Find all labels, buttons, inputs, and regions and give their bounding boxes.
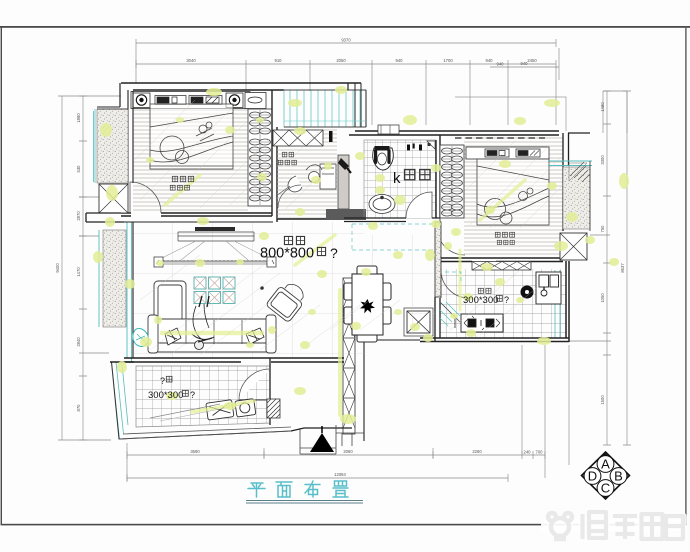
svg-text:C: C [601, 481, 610, 496]
svg-text:750: 750 [600, 225, 605, 233]
svg-text:1480: 1480 [600, 102, 605, 112]
svg-text:?: ? [190, 390, 195, 400]
svg-text:300*300: 300*300 [148, 390, 183, 401]
svg-text:240: 240 [524, 450, 532, 455]
svg-text:530: 530 [76, 165, 81, 173]
svg-text:300*300: 300*300 [463, 295, 498, 306]
svg-text:2870: 2870 [76, 211, 81, 221]
svg-text:910: 910 [275, 58, 283, 63]
svg-text:k: k [393, 170, 401, 187]
svg-text:12084: 12084 [334, 472, 346, 477]
svg-text:8637: 8637 [620, 263, 625, 273]
svg-text:2050: 2050 [336, 58, 346, 63]
svg-text:1880: 1880 [76, 113, 81, 123]
svg-text:940: 940 [486, 58, 494, 63]
svg-text:?: ? [160, 376, 165, 386]
svg-text:870: 870 [76, 404, 81, 412]
svg-text:800*800: 800*800 [260, 246, 314, 262]
svg-text:940: 940 [396, 58, 404, 63]
svg-text:9370: 9370 [341, 38, 351, 43]
svg-text:A: A [601, 457, 610, 472]
svg-text:2260: 2260 [472, 449, 482, 454]
svg-text:2840: 2840 [76, 337, 81, 347]
svg-text:?: ? [330, 245, 338, 261]
svg-text:940: 940 [521, 61, 529, 66]
svg-text:9400: 9400 [55, 263, 60, 273]
svg-text:D: D [588, 469, 597, 484]
svg-text:2060: 2060 [343, 449, 353, 454]
svg-text:1050: 1050 [600, 293, 605, 303]
svg-text:940: 940 [497, 62, 505, 67]
svg-text:2450: 2450 [527, 58, 537, 63]
svg-text:B: B [614, 469, 623, 484]
svg-text:3590: 3590 [190, 449, 200, 454]
svg-text:700: 700 [536, 450, 544, 455]
svg-text:3300: 3300 [600, 155, 605, 165]
svg-text:1500: 1500 [600, 395, 605, 405]
svg-text:3040: 3040 [186, 58, 196, 63]
svg-text:?: ? [504, 295, 509, 305]
svg-text:1700: 1700 [443, 58, 453, 63]
svg-text:1470: 1470 [76, 267, 81, 277]
